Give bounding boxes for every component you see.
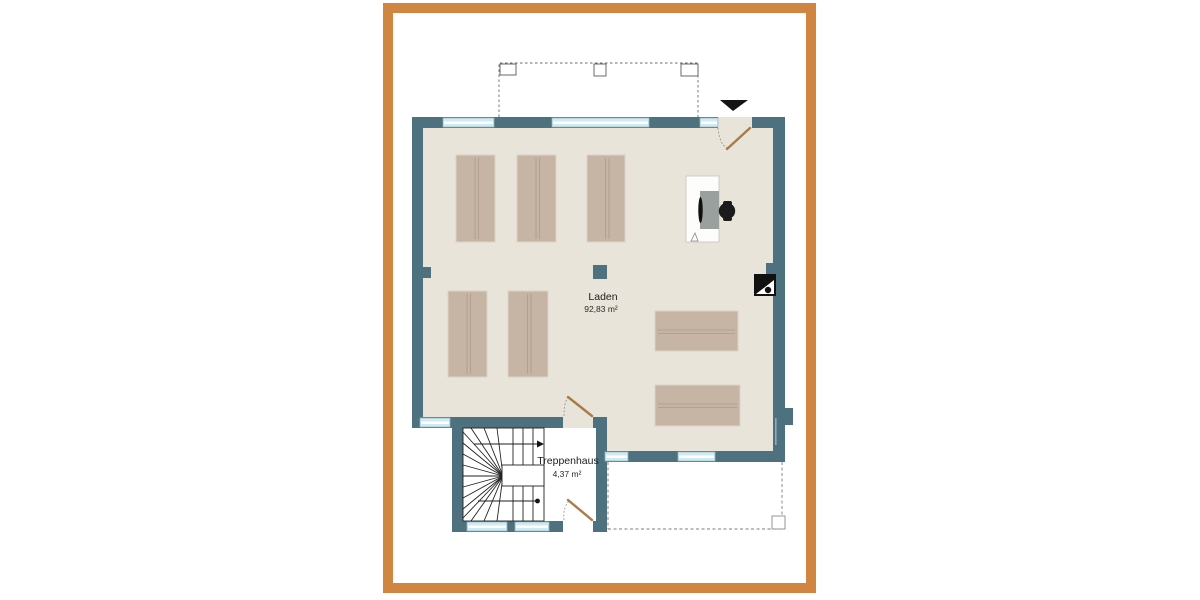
column <box>593 265 607 279</box>
window <box>700 118 718 127</box>
shelf-unit <box>448 291 487 377</box>
wall-watermark <box>775 418 777 445</box>
window <box>605 452 628 461</box>
entrance-arrow-icon <box>720 100 748 111</box>
terrace-post <box>772 516 785 529</box>
stairwell-wall-right <box>596 417 607 532</box>
stairs-start-dot <box>535 499 540 504</box>
canopy-outline <box>499 63 698 117</box>
window <box>552 118 649 127</box>
desk <box>686 176 719 242</box>
shelf-unit <box>587 155 625 242</box>
entrance-opening <box>718 117 752 128</box>
terrace-outline <box>608 462 785 529</box>
window <box>515 522 549 531</box>
wall-pilaster <box>423 267 431 278</box>
stair-door-opening <box>563 417 593 428</box>
chimney-icon <box>754 274 776 296</box>
canopy-post <box>500 64 516 75</box>
window <box>678 452 715 461</box>
canopy-post <box>681 64 698 76</box>
shelf-unit <box>655 385 740 426</box>
shelf-unit <box>508 291 548 377</box>
room-area: 4,37 m² <box>553 469 582 479</box>
window <box>467 522 507 531</box>
room-name: Laden <box>588 291 617 303</box>
stair-wellhole <box>502 465 544 486</box>
shelf-unit <box>456 155 495 242</box>
shelf-unit <box>517 155 556 242</box>
wall-left <box>412 117 423 428</box>
shelf-unit <box>655 311 738 351</box>
poster: Laden 92,83 m² Treppenhaus 4,37 m² <box>0 0 1200 600</box>
chimney-niche-step <box>766 263 785 275</box>
room-label-laden: Laden 92,83 m² <box>584 291 618 314</box>
window <box>420 418 450 427</box>
stairwell-wall-left <box>452 417 463 532</box>
room-name: Treppenhaus <box>537 455 599 467</box>
stair-entry-opening <box>563 521 593 532</box>
floor-plan: Laden 92,83 m² Treppenhaus 4,37 m² <box>0 0 1200 600</box>
monitor-icon <box>698 197 702 223</box>
canopy-post <box>594 64 606 76</box>
room-area: 92,83 m² <box>584 304 618 314</box>
window <box>443 118 494 127</box>
